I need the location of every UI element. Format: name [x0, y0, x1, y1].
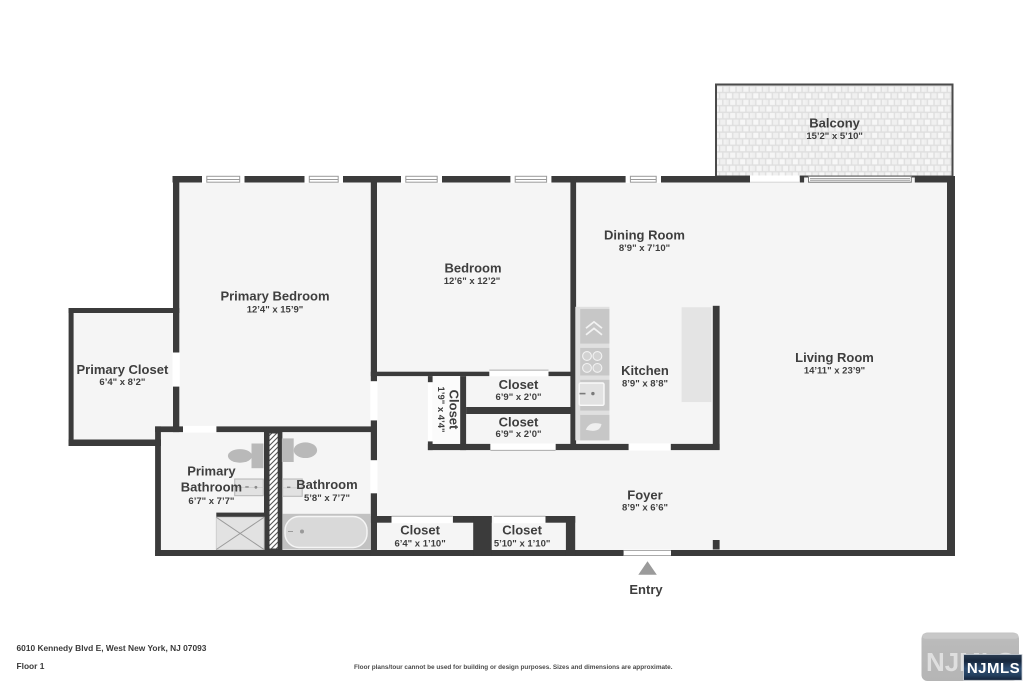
svg-text:8’9" x 7’10": 8’9" x 7’10" — [619, 243, 670, 254]
svg-text:Primary: Primary — [187, 464, 236, 479]
svg-text:Balcony: Balcony — [809, 116, 860, 131]
svg-text:6’7" x 7’7": 6’7" x 7’7" — [188, 496, 234, 507]
svg-text:8’9" x 6’6": 8’9" x 6’6" — [622, 502, 668, 513]
svg-text:Floor 1: Floor 1 — [17, 661, 45, 671]
svg-text:14’11" x 23’9": 14’11" x 23’9" — [804, 366, 865, 377]
svg-text:6’9" x 2’0": 6’9" x 2’0" — [496, 392, 542, 403]
svg-text:Living Room: Living Room — [795, 350, 874, 365]
svg-text:Closet: Closet — [447, 390, 462, 430]
svg-text:Entry: Entry — [629, 582, 663, 597]
svg-text:6’4" x 1’10": 6’4" x 1’10" — [394, 538, 445, 549]
svg-text:NJMLS: NJMLS — [967, 660, 1020, 677]
svg-text:Bedroom: Bedroom — [444, 261, 501, 276]
svg-text:5’8" x 7’7": 5’8" x 7’7" — [304, 493, 350, 504]
svg-text:6’9" x 2’0": 6’9" x 2’0" — [496, 429, 542, 440]
svg-text:6010 Kennedy Blvd E, West New: 6010 Kennedy Blvd E, West New York, NJ 0… — [17, 643, 207, 653]
svg-text:Closet: Closet — [400, 523, 440, 538]
svg-text:8’9" x 8’8": 8’9" x 8’8" — [622, 378, 668, 389]
svg-text:Primary Bedroom: Primary Bedroom — [220, 289, 329, 304]
svg-text:1’9" x 4’4": 1’9" x 4’4" — [435, 387, 446, 433]
svg-text:Foyer: Foyer — [627, 487, 662, 502]
svg-text:5’10" x 1’10": 5’10" x 1’10" — [494, 538, 551, 549]
svg-text:12’6" x 12’2": 12’6" x 12’2" — [444, 276, 501, 287]
svg-text:12’4" x 15’9": 12’4" x 15’9" — [247, 305, 304, 316]
svg-text:Kitchen: Kitchen — [621, 363, 669, 378]
svg-text:Closet: Closet — [499, 414, 539, 429]
svg-text:Floor plans/tour cannot be use: Floor plans/tour cannot be used for buil… — [354, 664, 673, 671]
svg-text:Bathroom: Bathroom — [181, 480, 242, 495]
svg-text:Bathroom: Bathroom — [296, 477, 357, 492]
svg-text:15’2" x 5’10": 15’2" x 5’10" — [806, 131, 863, 142]
svg-text:Closet: Closet — [502, 523, 542, 538]
svg-text:Dining Room: Dining Room — [604, 228, 685, 243]
svg-text:Closet: Closet — [499, 377, 539, 392]
svg-text:Primary Closet: Primary Closet — [77, 362, 169, 377]
svg-text:6’4" x 8’2": 6’4" x 8’2" — [99, 377, 145, 388]
